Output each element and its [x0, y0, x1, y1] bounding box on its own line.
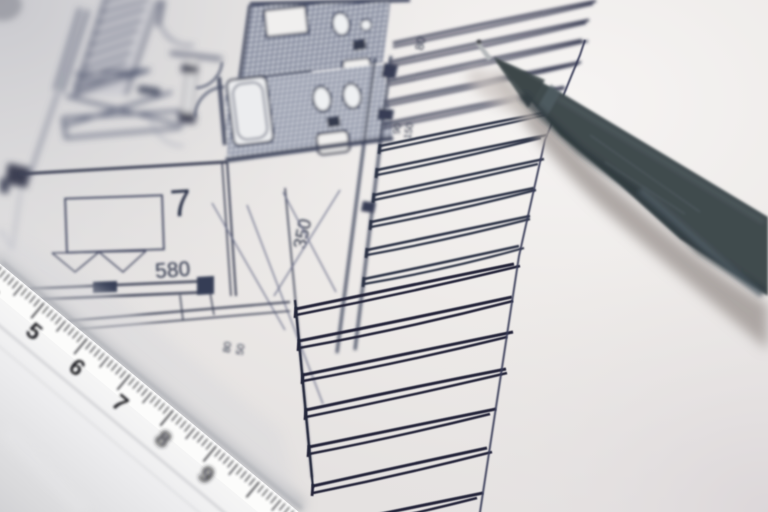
- svg-text:7: 7: [169, 182, 193, 225]
- svg-text:580: 580: [154, 258, 191, 283]
